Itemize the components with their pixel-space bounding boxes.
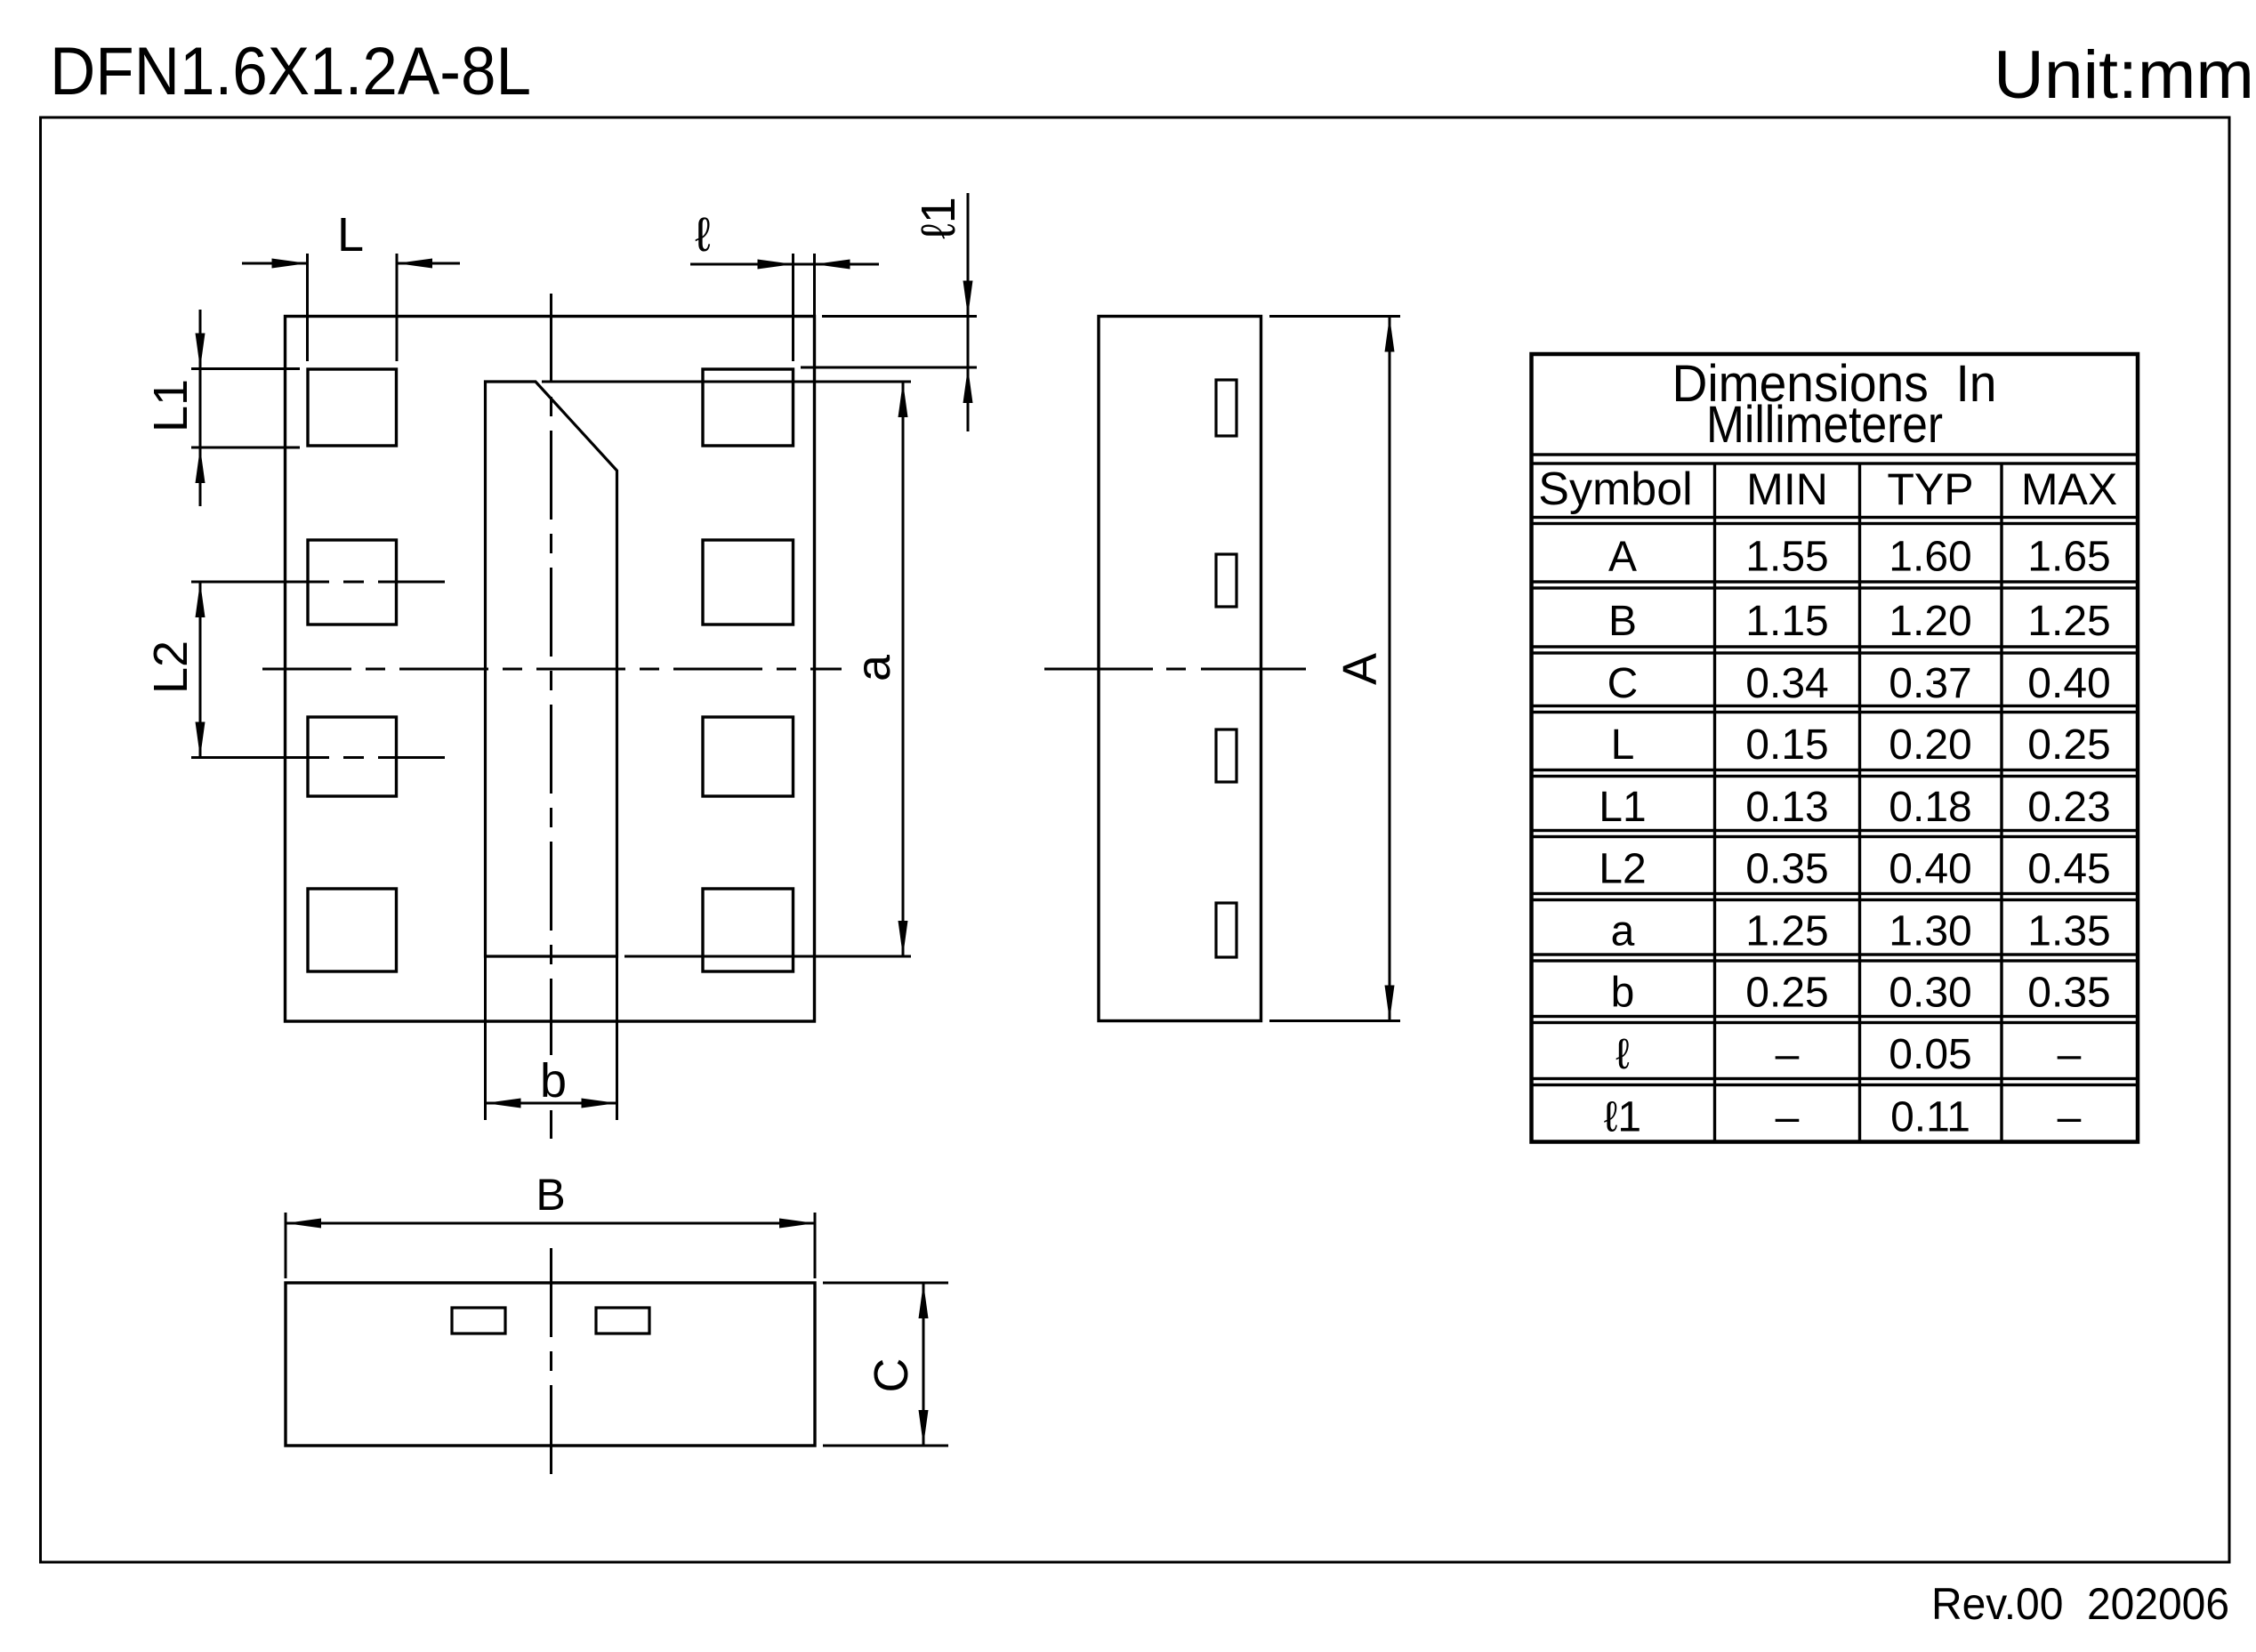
svg-text:B: B	[536, 1170, 565, 1220]
svg-text:0.11: 0.11	[1890, 1094, 1970, 1141]
svg-text:0.40: 0.40	[1889, 846, 1971, 893]
svg-text:b: b	[1611, 969, 1635, 1016]
svg-text:1.25: 1.25	[2027, 598, 2110, 645]
svg-text:Unit:mm: Unit:mm	[1994, 37, 2254, 113]
svg-text:0.45: 0.45	[2027, 846, 2110, 893]
svg-text:C: C	[1607, 660, 1639, 707]
svg-text:0.37: 0.37	[1889, 660, 1971, 707]
svg-text:1.35: 1.35	[2027, 907, 2110, 955]
svg-text:–: –	[2058, 1031, 2082, 1078]
svg-text:0.25: 0.25	[1745, 969, 1828, 1016]
svg-text:0.30: 0.30	[1889, 969, 1971, 1016]
svg-text:1.30: 1.30	[1889, 907, 1971, 955]
svg-text:1.65: 1.65	[2027, 533, 2110, 580]
svg-text:1.60: 1.60	[1889, 533, 1971, 580]
svg-text:L2: L2	[144, 641, 197, 694]
svg-text:1.25: 1.25	[1745, 907, 1828, 955]
svg-text:a: a	[1611, 907, 1635, 955]
svg-text:–: –	[2058, 1094, 2082, 1141]
svg-text:0.18: 0.18	[1889, 784, 1971, 831]
svg-text:DFN1.6X1.2A-8L: DFN1.6X1.2A-8L	[50, 34, 531, 109]
svg-text:L: L	[337, 208, 364, 262]
svg-text:L1: L1	[144, 379, 197, 432]
svg-text:1.55: 1.55	[1745, 533, 1828, 580]
svg-text:Rev.00 202006: Rev.00 202006	[1931, 1579, 2229, 1629]
svg-text:0.13: 0.13	[1745, 784, 1828, 831]
svg-text:–: –	[1776, 1031, 1800, 1078]
svg-text:A: A	[1608, 533, 1637, 580]
svg-text:ℓ: ℓ	[695, 208, 710, 262]
svg-text:B: B	[1608, 598, 1637, 645]
svg-text:0.05: 0.05	[1889, 1031, 1971, 1078]
svg-text:L2: L2	[1599, 846, 1646, 893]
svg-text:0.15: 0.15	[1745, 721, 1828, 769]
svg-text:C: C	[865, 1358, 918, 1393]
svg-text:ℓ1: ℓ1	[1604, 1094, 1641, 1141]
svg-text:0.23: 0.23	[2027, 784, 2110, 831]
svg-text:0.34: 0.34	[1745, 660, 1828, 707]
svg-text:1.20: 1.20	[1889, 598, 1971, 645]
svg-text:Millimeterer: Millimeterer	[1706, 396, 1943, 454]
svg-text:A: A	[1333, 653, 1387, 685]
svg-text:Symbol: Symbol	[1538, 463, 1692, 515]
svg-text:TYP: TYP	[1887, 464, 1973, 514]
svg-text:0.40: 0.40	[2027, 660, 2110, 707]
svg-text:1.15: 1.15	[1745, 598, 1828, 645]
svg-text:–: –	[1776, 1094, 1800, 1141]
svg-text:L1: L1	[1599, 784, 1646, 831]
svg-text:L: L	[1611, 721, 1635, 769]
svg-text:MAX: MAX	[2021, 464, 2117, 514]
svg-text:a: a	[847, 654, 900, 681]
svg-text:MIN: MIN	[1746, 464, 1828, 514]
svg-text:b: b	[540, 1054, 567, 1108]
svg-text:ℓ: ℓ	[1615, 1031, 1630, 1078]
svg-text:0.35: 0.35	[1745, 846, 1828, 893]
svg-text:0.20: 0.20	[1889, 721, 1971, 769]
svg-text:ℓ1: ℓ1	[912, 197, 965, 239]
svg-text:0.35: 0.35	[2027, 969, 2110, 1016]
svg-text:0.25: 0.25	[2027, 721, 2110, 769]
